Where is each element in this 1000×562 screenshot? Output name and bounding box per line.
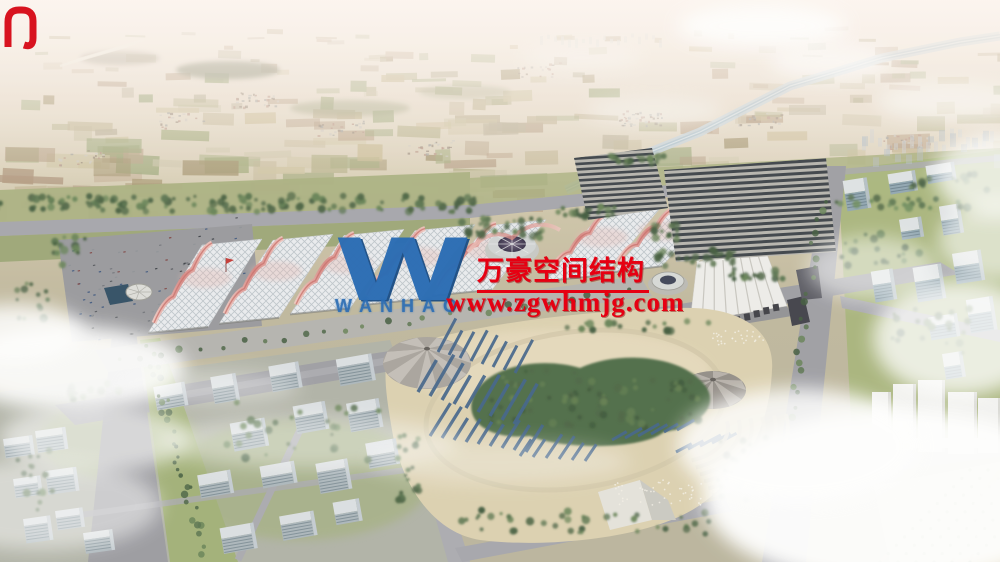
rendered-scene [0, 0, 1000, 562]
atmospheric-veil [0, 0, 1000, 562]
aerial-rendering: W WANHAO 万豪空间结构 www.zgwhmjg.com [0, 0, 1000, 562]
